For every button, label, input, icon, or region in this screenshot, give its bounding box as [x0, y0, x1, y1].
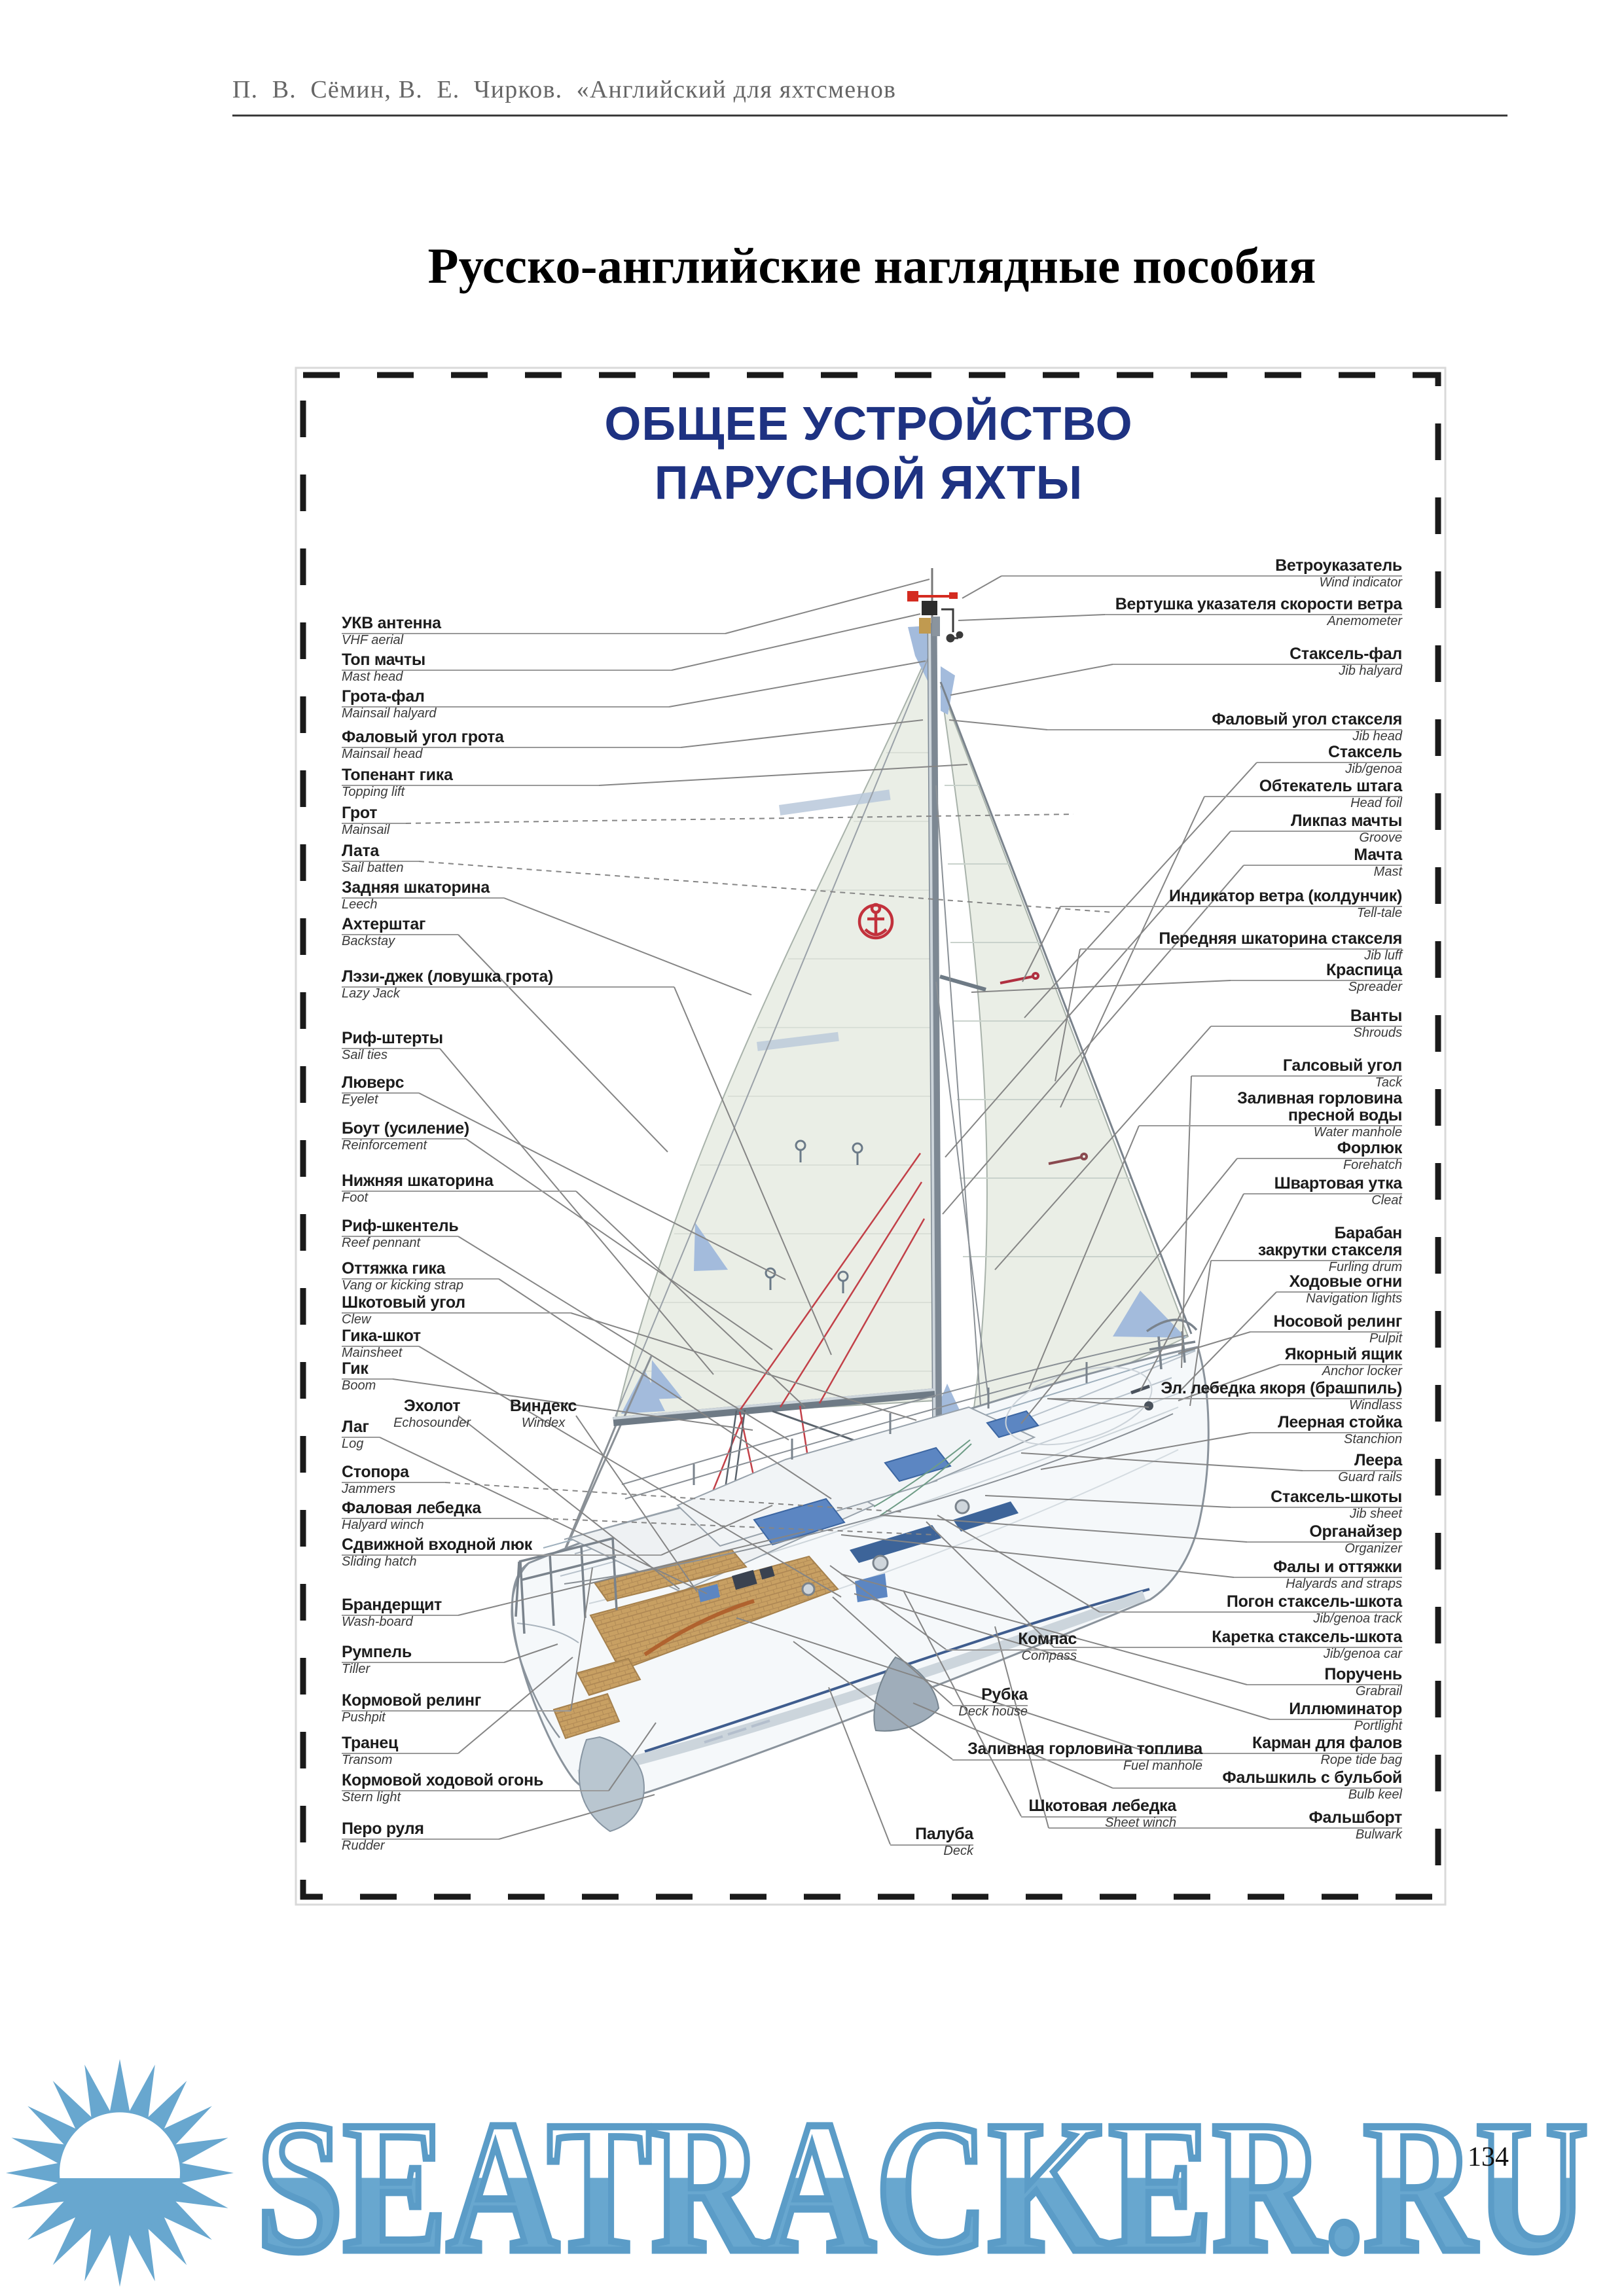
svg-text:SEATRACKER.RU: SEATRACKER.RU — [257, 2083, 1588, 2291]
